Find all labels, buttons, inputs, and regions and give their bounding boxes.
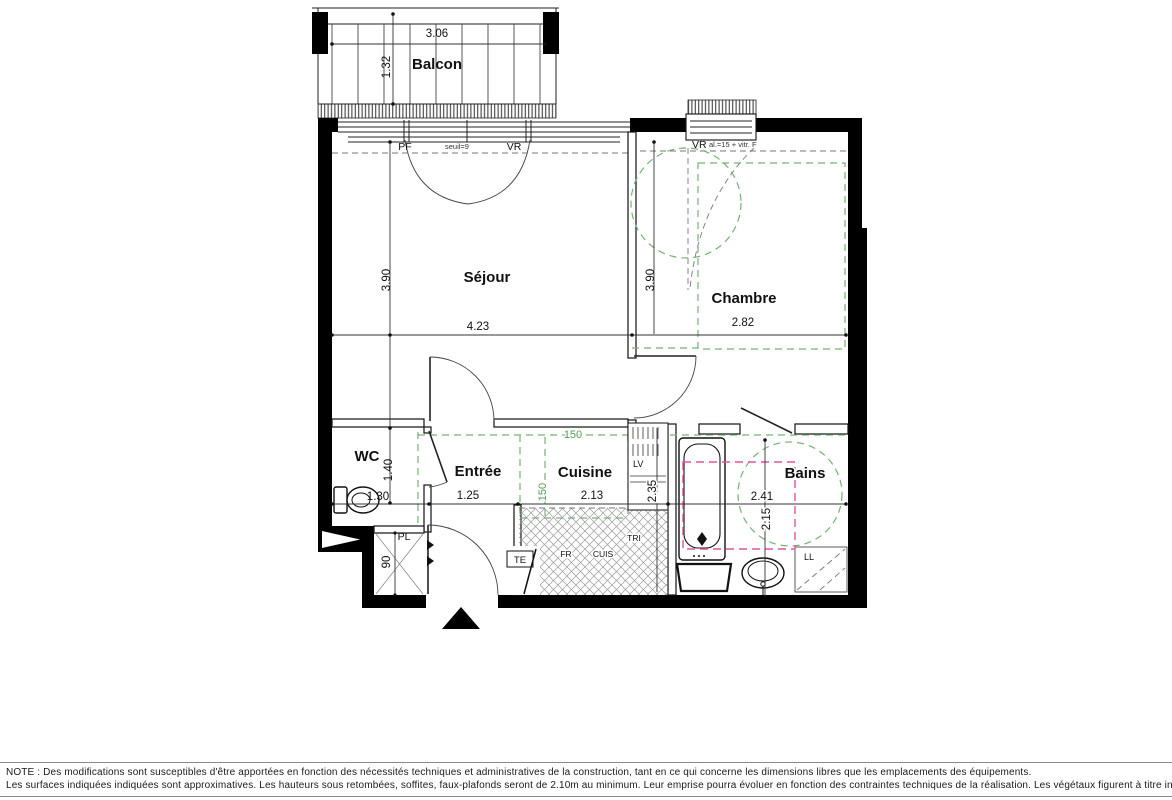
dim-chambre-width: 2.82: [732, 317, 754, 329]
balcony-pier-left: [312, 12, 328, 54]
label-ll: LL: [804, 552, 814, 562]
room-label-wc: WC: [355, 448, 380, 465]
dim-clearance-height: 150: [537, 483, 549, 501]
room-label-balcon: Balcon: [412, 56, 462, 73]
footer-note: NOTE : Des modifications sont susceptibl…: [0, 762, 1172, 797]
dim-wc-depth: 1.40: [383, 459, 395, 481]
footer-note-line2: Les surfaces indiquées indiquées sont ap…: [6, 779, 1166, 792]
entrance-marker-triangle: [442, 607, 480, 629]
dim-entree-width: 1.25: [457, 490, 479, 502]
dim-sejour-width: 4.23: [467, 321, 489, 333]
dim-balcon-depth: 1.32: [381, 56, 393, 78]
label-lv: LV: [633, 459, 643, 469]
room-labels: Séjour Chambre WC Entrée Cuisine Bains: [355, 269, 826, 482]
dim-placard-depth: 90: [381, 556, 393, 569]
washing-machine-slot: LL: [795, 547, 847, 592]
floor-plan-drawing: 3.06 1.32 Balcon PF seuil=9 VR: [0, 0, 1172, 800]
label-seuil: seuil=9: [445, 142, 469, 151]
label-vr-sejour: VR: [507, 141, 522, 153]
dim-cuisine-depth: 2.35: [647, 480, 659, 502]
floor-plan-page: 3.06 1.32 Balcon PF seuil=9 VR: [0, 0, 1172, 800]
dim-sejour-depth: 3.90: [381, 269, 393, 291]
label-vr-chambre-info: al.=15 + vitr. F: [709, 140, 757, 149]
dim-clearance-width: 150: [564, 429, 582, 441]
room-label-cuisine: Cuisine: [558, 464, 612, 481]
dim-chambre-depth: 3.90: [645, 269, 657, 291]
label-fr: FR: [560, 549, 571, 559]
balcony-pier-right: [543, 12, 559, 54]
bains-door-leaf: [741, 408, 792, 433]
room-label-bains: Bains: [785, 465, 826, 482]
dim-bains-depth: 2.15: [761, 508, 773, 530]
room-label-entree: Entrée: [455, 463, 502, 480]
dim-bains-width: 2.41: [751, 491, 773, 503]
dim-balcon-width: 3.06: [426, 28, 448, 40]
label-te: TE: [514, 555, 526, 566]
label-cuis: CUIS: [593, 549, 614, 559]
sejour-french-window: PF seuil=9 VR: [332, 120, 630, 204]
room-label-chambre: Chambre: [711, 290, 776, 307]
washbasin: [742, 558, 784, 595]
dim-wc-width: 1.30: [367, 491, 389, 503]
wc-door-leaf: [429, 431, 447, 482]
balcony-sill-hatch: [318, 104, 556, 118]
bath-step: [677, 564, 731, 591]
placard: PL 90: [376, 531, 423, 597]
dim-cuisine-width: 2.13: [581, 490, 603, 502]
label-pl: PL: [398, 531, 411, 543]
label-pf: PF: [398, 141, 411, 153]
footer-note-line1: NOTE : Des modifications sont susceptibl…: [6, 766, 1166, 779]
balcony: 3.06 1.32 Balcon: [312, 8, 559, 118]
bathtub: [679, 438, 725, 560]
room-label-sejour: Séjour: [464, 269, 511, 286]
label-tri: TRI: [627, 533, 641, 543]
